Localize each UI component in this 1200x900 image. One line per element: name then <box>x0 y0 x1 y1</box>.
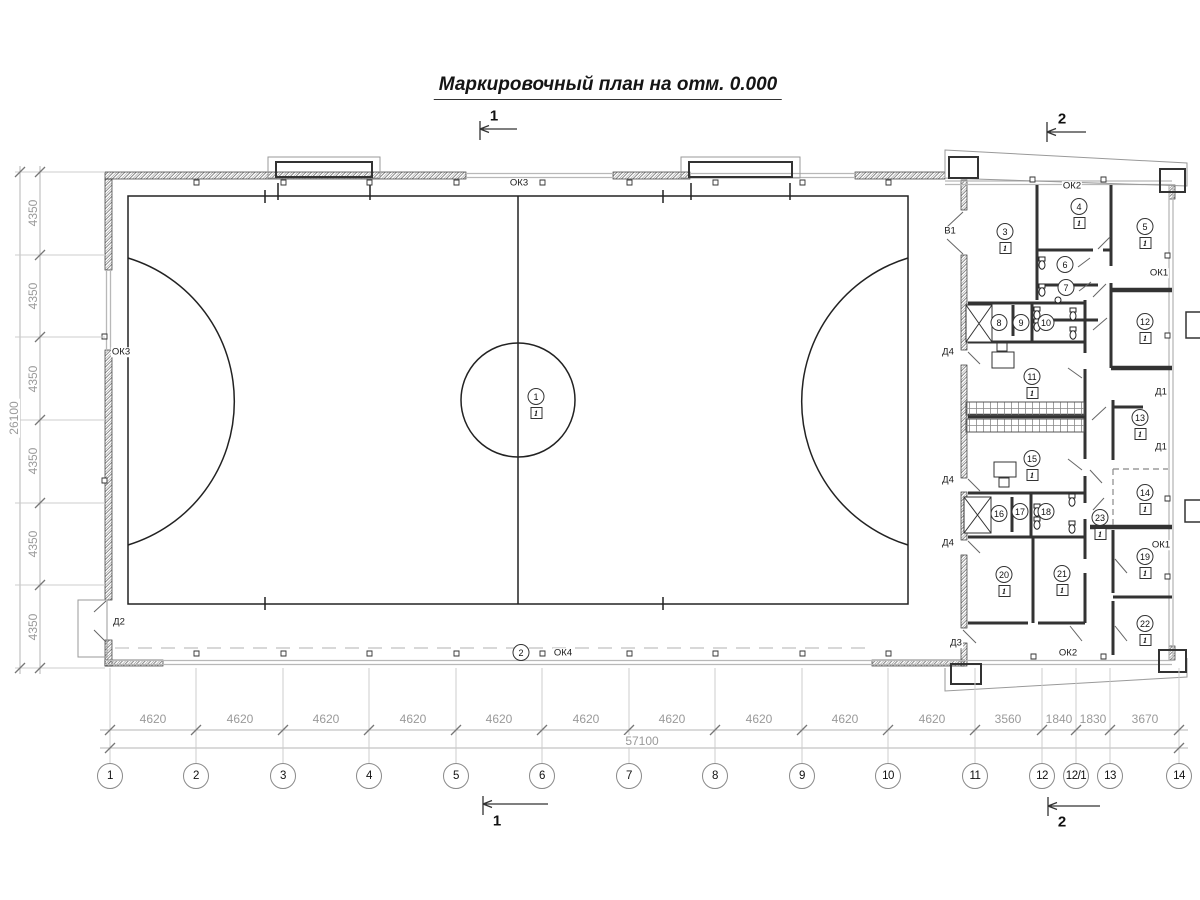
wall-opening-label: ОК3 <box>111 347 131 357</box>
section-cut-label: 2 <box>1058 111 1066 128</box>
room-number-circle: 7 <box>1058 279 1075 296</box>
room-finish-tag: 1 <box>1139 237 1151 249</box>
dimension-label: 4350 <box>27 366 39 393</box>
room-number-circle: 22 <box>1137 615 1154 632</box>
dimension-label: 4620 <box>573 713 600 725</box>
dimension-label: 4350 <box>27 200 39 227</box>
room-number-circle: 10 <box>1038 314 1055 331</box>
room-finish-tag: 1 <box>1094 528 1106 540</box>
section-cut-label: 1 <box>493 813 501 830</box>
grid-axis-bubble: 14 <box>1166 763 1192 789</box>
room-number-circle: 5 <box>1137 218 1154 235</box>
room-tag: 7 <box>1058 279 1075 296</box>
section-cut-label: 1 <box>490 108 498 125</box>
dimension-label: 4620 <box>400 713 427 725</box>
room-number-circle: 1 <box>528 388 545 405</box>
wall-opening-label: Д4 <box>941 538 955 548</box>
room-finish-tag: 1 <box>998 585 1010 597</box>
room-tag: 2 <box>513 644 530 661</box>
dimension-label: 4350 <box>27 448 39 475</box>
room-tag: 6 <box>1057 256 1074 273</box>
wall-opening-label: ОК3 <box>509 178 529 188</box>
room-tag: 16 <box>991 505 1008 522</box>
wall-opening-label: ОК1 <box>1149 268 1169 278</box>
room-number-circle: 2 <box>513 644 530 661</box>
dimension-label: 1830 <box>1080 713 1107 725</box>
room-number-circle: 6 <box>1057 256 1074 273</box>
grid-axis-bubble: 7 <box>616 763 642 789</box>
dimension-label: 3670 <box>1132 713 1159 725</box>
room-tag: 21 1 <box>1054 565 1071 596</box>
room-finish-tag: 1 <box>1073 217 1085 229</box>
wall-opening-label: ОК2 <box>1062 181 1082 191</box>
sports-court-markings <box>128 183 908 610</box>
room-number-circle: 20 <box>996 566 1013 583</box>
room-tag: 17 <box>1012 503 1029 520</box>
room-finish-tag: 1 <box>1134 428 1146 440</box>
room-finish-tag: 1 <box>1026 387 1038 399</box>
room-number-circle: 8 <box>991 314 1008 331</box>
dimension-label: 3560 <box>995 713 1022 725</box>
section-cut-label: 2 <box>1058 814 1066 831</box>
room-number-circle: 9 <box>1013 314 1030 331</box>
room-tag: 1 1 <box>528 388 545 419</box>
dimension-total-label: 26100 <box>8 398 20 437</box>
dimension-label: 1840 <box>1046 713 1073 725</box>
room-finish-tag: 1 <box>1139 503 1151 515</box>
room-tag: 23 1 <box>1092 509 1109 540</box>
wall-opening-label: Д1 <box>1154 442 1168 452</box>
room-finish-tag: 1 <box>1026 469 1038 481</box>
grid-axis-bubble: 10 <box>875 763 901 789</box>
grid-axis-bubble: 5 <box>443 763 469 789</box>
room-tag: 15 1 <box>1024 450 1041 481</box>
room-tag: 10 <box>1038 314 1055 331</box>
dimension-total-label: 57100 <box>622 735 661 747</box>
room-finish-tag: 1 <box>1139 634 1151 646</box>
room-tag: 4 1 <box>1071 198 1088 229</box>
room-number-circle: 17 <box>1012 503 1029 520</box>
room-finish-tag: 1 <box>1139 332 1151 344</box>
room-number-circle: 23 <box>1092 509 1109 526</box>
grid-axis-bubble: 13 <box>1097 763 1123 789</box>
room-number-circle: 13 <box>1132 409 1149 426</box>
room-number-circle: 18 <box>1038 503 1055 520</box>
grid-axis-bubble: 4 <box>356 763 382 789</box>
room-tag: 11 1 <box>1024 368 1041 399</box>
grid-axis-bubble: 2 <box>183 763 209 789</box>
wall-opening-label: В1 <box>943 226 957 236</box>
dimension-label: 4620 <box>313 713 340 725</box>
room-number-circle: 3 <box>997 223 1014 240</box>
room-tag: 9 <box>1013 314 1030 331</box>
wall-opening-label: Д4 <box>941 475 955 485</box>
wall-opening-label: Д1 <box>1154 387 1168 397</box>
dashed-lines <box>115 469 1168 648</box>
room-tag: 20 1 <box>996 566 1013 597</box>
room-number-circle: 14 <box>1137 484 1154 501</box>
room-finish-tag: 1 <box>530 407 542 419</box>
dimension-label: 4350 <box>27 531 39 558</box>
grid-axis-bubble: 9 <box>789 763 815 789</box>
room-tag: 5 1 <box>1137 218 1154 249</box>
dimension-label: 4350 <box>27 283 39 310</box>
room-finish-tag: 1 <box>1139 567 1151 579</box>
dimension-label: 4620 <box>486 713 513 725</box>
grid-axis-bubble: 11 <box>962 763 988 789</box>
grid-axis-bubble: 6 <box>529 763 555 789</box>
grid-axis-bubble: 12/1 <box>1063 763 1089 789</box>
room-tag: 3 1 <box>997 223 1014 254</box>
grid-axis-bubble: 3 <box>270 763 296 789</box>
plan-linework <box>0 0 1200 900</box>
wall-opening-label: Д3 <box>949 638 963 648</box>
room-number-circle: 16 <box>991 505 1008 522</box>
room-finish-tag: 1 <box>999 242 1011 254</box>
room-tag: 8 <box>991 314 1008 331</box>
wall-opening-label: Д2 <box>112 617 126 627</box>
grid-axis-bubble: 12 <box>1029 763 1055 789</box>
room-tag: 19 1 <box>1137 548 1154 579</box>
dimension-label: 4620 <box>746 713 773 725</box>
room-number-circle: 21 <box>1054 565 1071 582</box>
wall-opening-label: ОК4 <box>553 648 573 658</box>
room-finish-tag: 1 <box>1056 584 1068 596</box>
room-tag: 14 1 <box>1137 484 1154 515</box>
dimension-label: 4620 <box>140 713 167 725</box>
dimension-label: 4620 <box>659 713 686 725</box>
dimension-label: 4620 <box>832 713 859 725</box>
wall-opening-label: ОК1 <box>1151 540 1171 550</box>
room-number-circle: 4 <box>1071 198 1088 215</box>
wall-opening-label: ОК2 <box>1058 648 1078 658</box>
dimension-label: 4620 <box>227 713 254 725</box>
grid-axis-bubble: 1 <box>97 763 123 789</box>
dimension-label: 4350 <box>27 614 39 641</box>
room-tag: 12 1 <box>1137 313 1154 344</box>
drawing-title: Маркировочный план на отм. 0.000 <box>434 74 782 100</box>
room-number-circle: 19 <box>1137 548 1154 565</box>
dimension-label: 4620 <box>919 713 946 725</box>
room-tag: 22 1 <box>1137 615 1154 646</box>
room-tag: 13 1 <box>1132 409 1149 440</box>
room-tag: 18 <box>1038 503 1055 520</box>
room-number-circle: 15 <box>1024 450 1041 467</box>
wall-opening-label: Д4 <box>941 347 955 357</box>
room-number-circle: 12 <box>1137 313 1154 330</box>
grid-axis-bubble: 8 <box>702 763 728 789</box>
room-number-circle: 11 <box>1024 368 1041 385</box>
